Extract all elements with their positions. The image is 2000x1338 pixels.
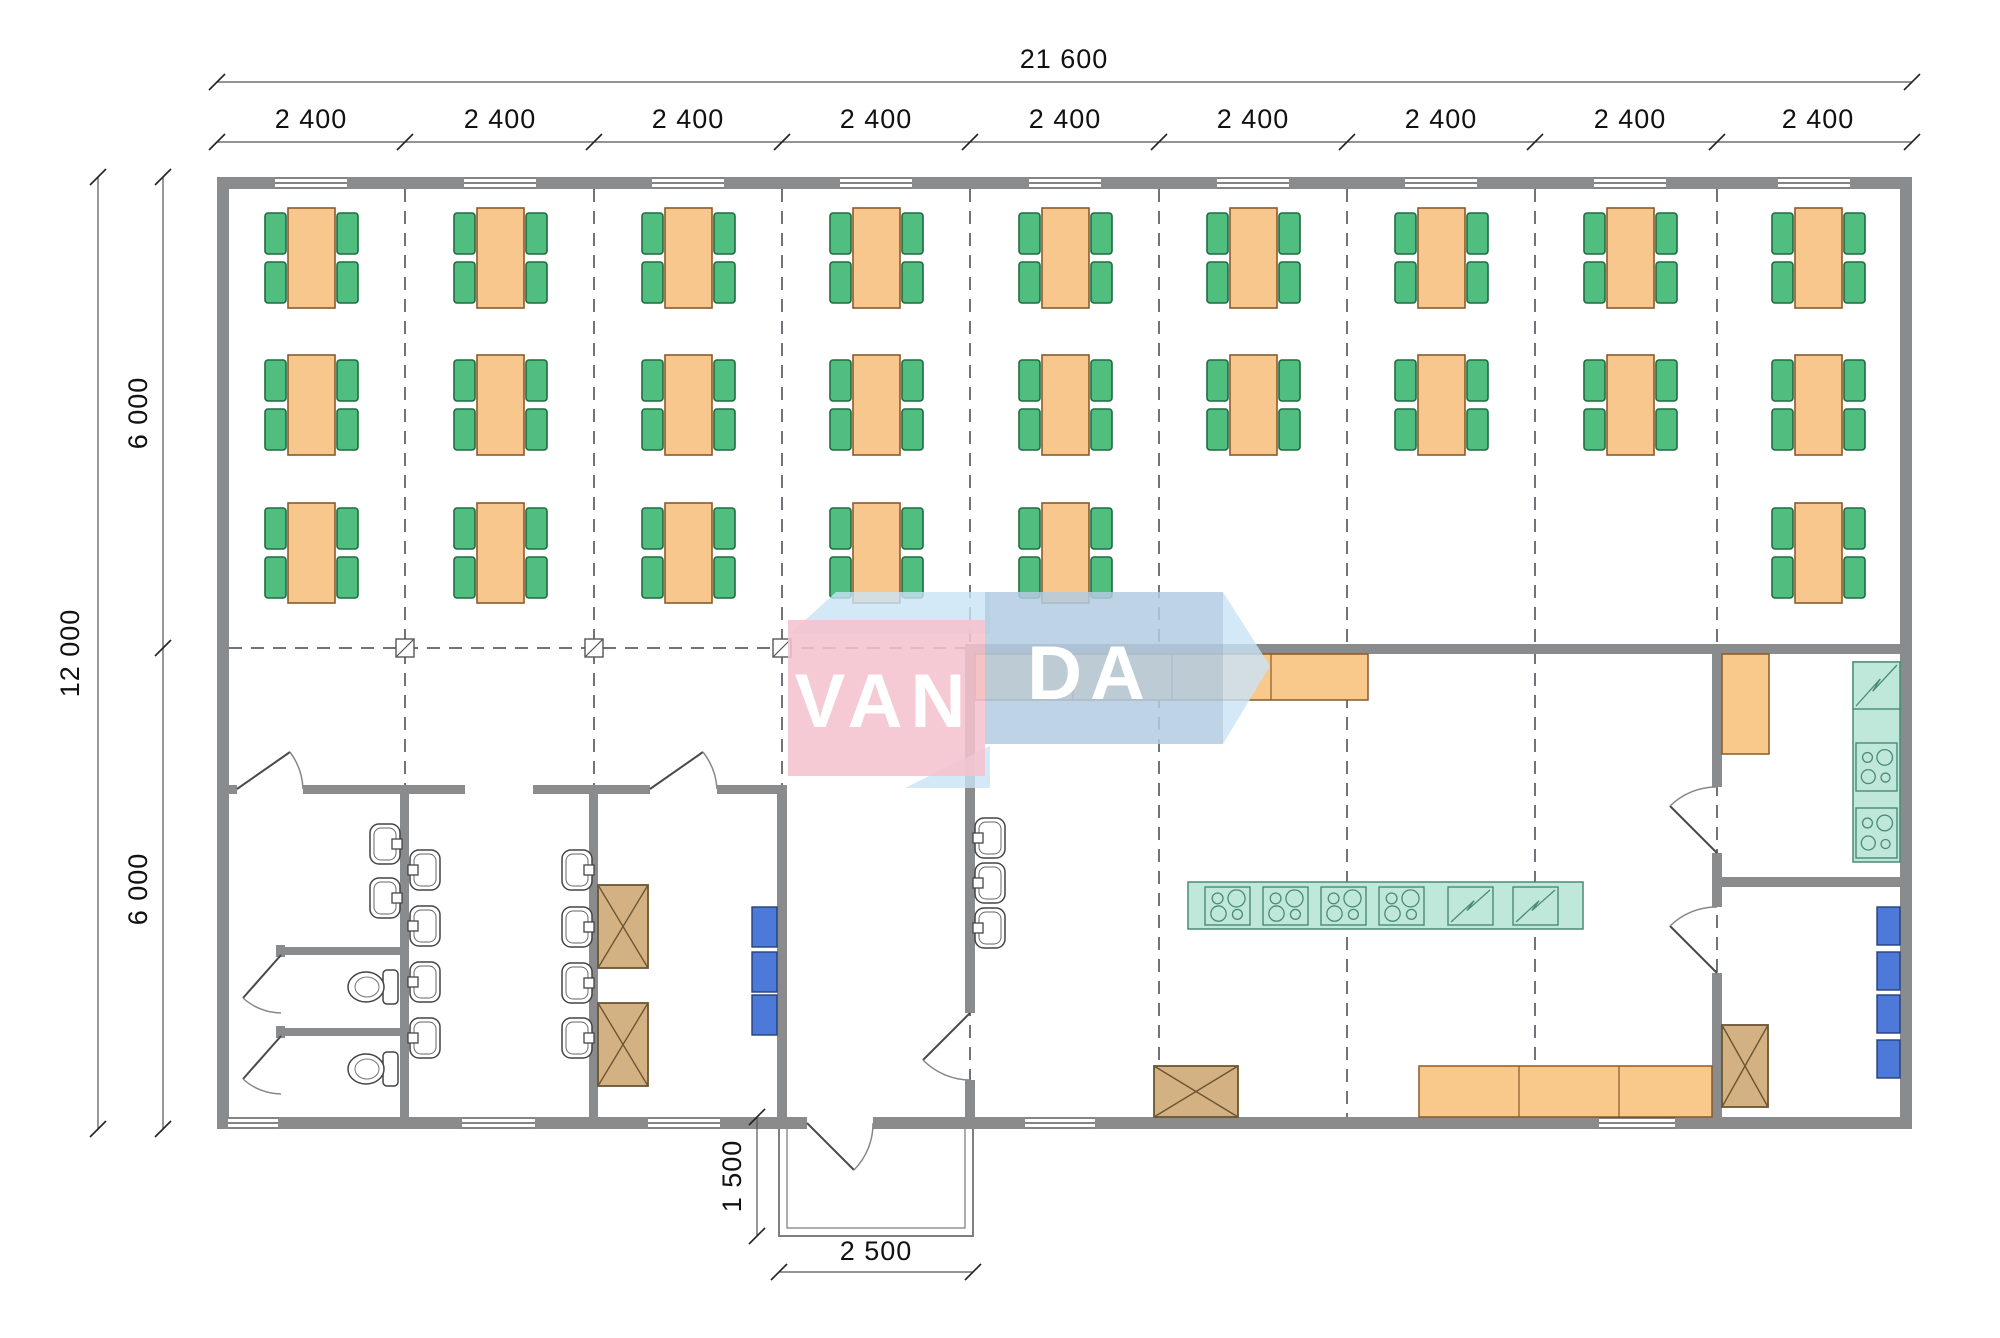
floor-plan-canvas: VAN DA 21 600 2 400 2 400 2 400 2 400 2 … [0,0,2000,1338]
door-washroom-left [237,752,303,789]
door-right-room-upper [1670,787,1717,853]
dining-chair [265,508,286,549]
dining-set [642,503,735,603]
wall-wc-stall-1 [285,947,400,955]
wall-wc-stall-2 [285,1028,400,1036]
dining-chair [1467,262,1488,303]
dining-set [1772,208,1865,308]
faucet-icon [584,922,594,932]
dining-table [665,208,712,308]
toilet-tank [383,1052,398,1086]
faucet-icon [973,923,983,933]
cooktop-icon [1205,887,1250,925]
cooktop-icon [1856,808,1897,858]
dining-chair [526,262,547,303]
dining-table [1042,208,1089,308]
wall-right-rooms-b [1712,853,1722,907]
storage-box [598,885,648,968]
dining-chair [1091,262,1112,303]
dining-chair [454,262,475,303]
cooktop-frame [1856,743,1897,791]
dining-chair [1844,409,1865,450]
dining-chair [902,360,923,401]
dining-table [665,355,712,455]
dining-chair [902,409,923,450]
wash-basin-icon [408,906,440,946]
vanda-watermark: VAN DA [788,592,1270,788]
dining-chair [265,262,286,303]
floor-plan-drawing: VAN DA [0,0,2000,1338]
dining-set [1019,208,1112,308]
dining-table [1230,208,1277,308]
dining-set [454,208,547,308]
dining-chair [642,360,663,401]
dining-table [1418,355,1465,455]
dining-set [1395,208,1488,308]
dining-table [288,355,335,455]
dining-chair [337,213,358,254]
wall-outer-left [217,177,229,1129]
dining-chair [642,213,663,254]
wash-basin-icon [408,850,440,890]
dining-chair [1656,262,1677,303]
wash-basin-icon [562,1018,594,1058]
dining-chair [830,409,851,450]
dining-table [477,355,524,455]
dining-chair [714,557,735,598]
storage-box [598,1003,648,1086]
dining-chair [1091,409,1112,450]
dim-half-height-1: 6 000 [68,343,208,483]
dining-table [1042,503,1089,603]
sink-unit-icon [1513,887,1558,925]
wall-washroom-top-4 [717,785,777,794]
dim-porch-depth: 1 500 [662,1106,802,1246]
dim-bay-8: 2 400 [1570,104,1690,135]
dining-table [853,503,900,603]
wall-washroom-top-2 [303,785,465,794]
storage-box [1154,1066,1238,1117]
dim-porch-width: 2 500 [776,1236,976,1267]
dining-chair [830,360,851,401]
dining-chair [642,508,663,549]
locker-box [1877,907,1900,945]
dining-chair [1019,213,1040,254]
dining-chair [526,360,547,401]
dining-chair [714,213,735,254]
dining-chair [526,557,547,598]
locker-box [752,907,777,947]
dining-chair [454,360,475,401]
dining-set [1584,208,1677,308]
dining-set [1772,355,1865,455]
dining-chair [454,508,475,549]
wall-washroom-divider-2 [589,794,598,1117]
dining-chair [1584,409,1605,450]
wash-basin-icon [370,824,402,864]
faucet-icon [973,833,983,843]
dim-bay-1: 2 400 [251,104,371,135]
dim-bay-2: 2 400 [440,104,560,135]
dim-bay-7: 2 400 [1381,104,1501,135]
door-wc-stall-2 [243,1036,281,1094]
dining-chair [526,213,547,254]
dining-set [642,208,735,308]
dining-set [265,208,358,308]
faucet-icon [584,1033,594,1043]
dining-chair [902,508,923,549]
locker-box [752,952,777,992]
dining-chair [642,262,663,303]
faucet-icon [392,893,402,903]
wash-basin-icon [973,863,1005,903]
dining-set [1207,355,1300,455]
dining-chair [1844,508,1865,549]
wall-vestibule-left [777,785,787,1117]
entrance-opening [807,1116,873,1130]
cooktop-icon [1263,887,1308,925]
dining-chair [1467,409,1488,450]
toilet-icon [348,970,398,1004]
door-right-room-lower [1670,907,1717,973]
dining-chair [1019,557,1040,598]
dining-chair [337,360,358,401]
dining-chair [1091,213,1112,254]
dining-chair [1467,360,1488,401]
cooktop-icon [1856,743,1897,791]
dining-set [1207,208,1300,308]
dining-set [830,208,923,308]
dining-chair [1207,213,1228,254]
faucet-icon [408,977,418,987]
dining-table [288,503,335,603]
faucet-icon [392,839,402,849]
wall-right-rooms-divider [1722,877,1900,887]
dining-chair [1584,213,1605,254]
door-wc-stall-1 [243,955,281,1013]
locker-box [1877,995,1900,1033]
wall-vestibule-right-lower [965,1080,975,1117]
dining-chair [830,508,851,549]
dining-table [1607,355,1654,455]
watermark-text-left: VAN [795,659,974,744]
sink-unit-icon [1448,887,1493,925]
dining-chair [642,557,663,598]
dining-set [1019,355,1112,455]
dining-table [1795,503,1842,603]
dining-chair [1279,213,1300,254]
locker-box [752,995,777,1035]
dining-chair [1844,213,1865,254]
dining-table [665,503,712,603]
wash-basin-icon [562,907,594,947]
dim-bay-9: 2 400 [1758,104,1878,135]
dining-chair [1772,360,1793,401]
faucet-icon [408,1033,418,1043]
dining-chair [1656,409,1677,450]
dining-chair [337,508,358,549]
watermark-text-right: DA [1027,631,1153,716]
dining-chair [337,409,358,450]
dining-chair [1467,213,1488,254]
dining-set [265,503,358,603]
door-kitchen [923,1013,970,1080]
dining-chair [1772,262,1793,303]
dining-chair [265,360,286,401]
door-storeroom [650,752,717,789]
dining-set [1019,503,1112,603]
storage-box [1722,1025,1768,1107]
watermark-arrow-shadow [1223,592,1270,744]
toilet-icon [348,1052,398,1086]
wash-basin-icon [408,1018,440,1058]
dining-chair [1772,409,1793,450]
dining-chair [902,262,923,303]
dining-chair [830,213,851,254]
dining-chair [1656,360,1677,401]
dining-chair [1091,557,1112,598]
dining-set [1772,503,1865,603]
wash-basin-icon [408,962,440,1002]
dining-chair [830,557,851,598]
dining-chair [454,409,475,450]
cooktop-icon [1321,887,1366,925]
dining-chair [1656,213,1677,254]
dining-table [1042,355,1089,455]
dining-chair [1772,557,1793,598]
dim-bay-6: 2 400 [1193,104,1313,135]
dining-chair [1019,360,1040,401]
faucet-icon [973,878,983,888]
dining-set [1584,355,1677,455]
dining-chair [1395,360,1416,401]
dining-chair [642,409,663,450]
dining-chair [526,508,547,549]
dining-table [853,355,900,455]
dining-chair [1772,213,1793,254]
dining-chair [1279,360,1300,401]
dining-chair [265,557,286,598]
faucet-icon [584,865,594,875]
dining-chair [902,557,923,598]
wash-basin-icon [562,850,594,890]
faucet-icon [408,865,418,875]
dining-chair [830,262,851,303]
kitchen-counter [1419,1066,1712,1117]
sink-unit-icon [1853,662,1900,709]
dining-chair [526,409,547,450]
dining-set [830,503,923,603]
dining-chair [1584,360,1605,401]
dining-chair [265,409,286,450]
dim-bay-4: 2 400 [816,104,936,135]
wash-basin-icon [973,818,1005,858]
dining-set [454,355,547,455]
dining-set [642,355,735,455]
dining-chair [337,557,358,598]
wash-basin-icon [370,878,402,918]
dim-bay-5: 2 400 [1005,104,1125,135]
dining-chair [1207,409,1228,450]
toilet-tank [383,970,398,1004]
entrance-porch [779,1129,973,1236]
dining-table [288,208,335,308]
dining-chair [1019,409,1040,450]
dining-set [454,503,547,603]
dining-chair [1207,262,1228,303]
dining-chair [1772,508,1793,549]
dining-chair [1091,508,1112,549]
dining-set [830,355,923,455]
dining-chair [1395,409,1416,450]
dim-total-height: 12 000 [0,583,140,723]
wall-right-rooms-a [1712,654,1722,787]
locker-box [1877,1040,1900,1078]
wall-washroom-top-3 [533,785,650,794]
dining-chair [1279,409,1300,450]
dining-table [477,503,524,603]
dining-set [1395,355,1488,455]
wall-right-rooms-c [1712,973,1722,1117]
dining-chair [1091,360,1112,401]
wash-basin-icon [562,963,594,1003]
wall-washroom-top-1 [229,785,237,794]
dining-table [1230,355,1277,455]
dining-chair [454,557,475,598]
dining-chair [1395,213,1416,254]
dining-chair [1584,262,1605,303]
dining-chair [1207,360,1228,401]
dining-table [853,208,900,308]
dining-table [477,208,524,308]
dining-set [265,355,358,455]
dining-chair [337,262,358,303]
dining-table [1795,355,1842,455]
faucet-icon [408,921,418,931]
faucet-icon [584,978,594,988]
wash-basin-icon [973,908,1005,948]
dining-chair [1395,262,1416,303]
dining-chair [1279,262,1300,303]
dining-chair [714,409,735,450]
dining-chair [1844,360,1865,401]
kitchen-counter [1722,654,1769,754]
dining-chair [1019,262,1040,303]
dining-table [1607,208,1654,308]
dining-table [1795,208,1842,308]
dining-chair [1844,262,1865,303]
dining-chair [1019,508,1040,549]
dim-half-height-2: 6 000 [68,819,208,959]
dining-chair [454,213,475,254]
cooktop-frame [1856,808,1897,858]
dining-chair [714,360,735,401]
dining-chair [265,213,286,254]
locker-box [1877,952,1900,990]
door-entrance [807,1123,873,1170]
dining-chair [714,262,735,303]
dining-chair [714,508,735,549]
dining-table [1418,208,1465,308]
dim-total-width: 21 600 [964,44,1164,75]
dim-bay-3: 2 400 [628,104,748,135]
dining-chair [1844,557,1865,598]
dining-chair [902,213,923,254]
cooktop-icon [1379,887,1424,925]
